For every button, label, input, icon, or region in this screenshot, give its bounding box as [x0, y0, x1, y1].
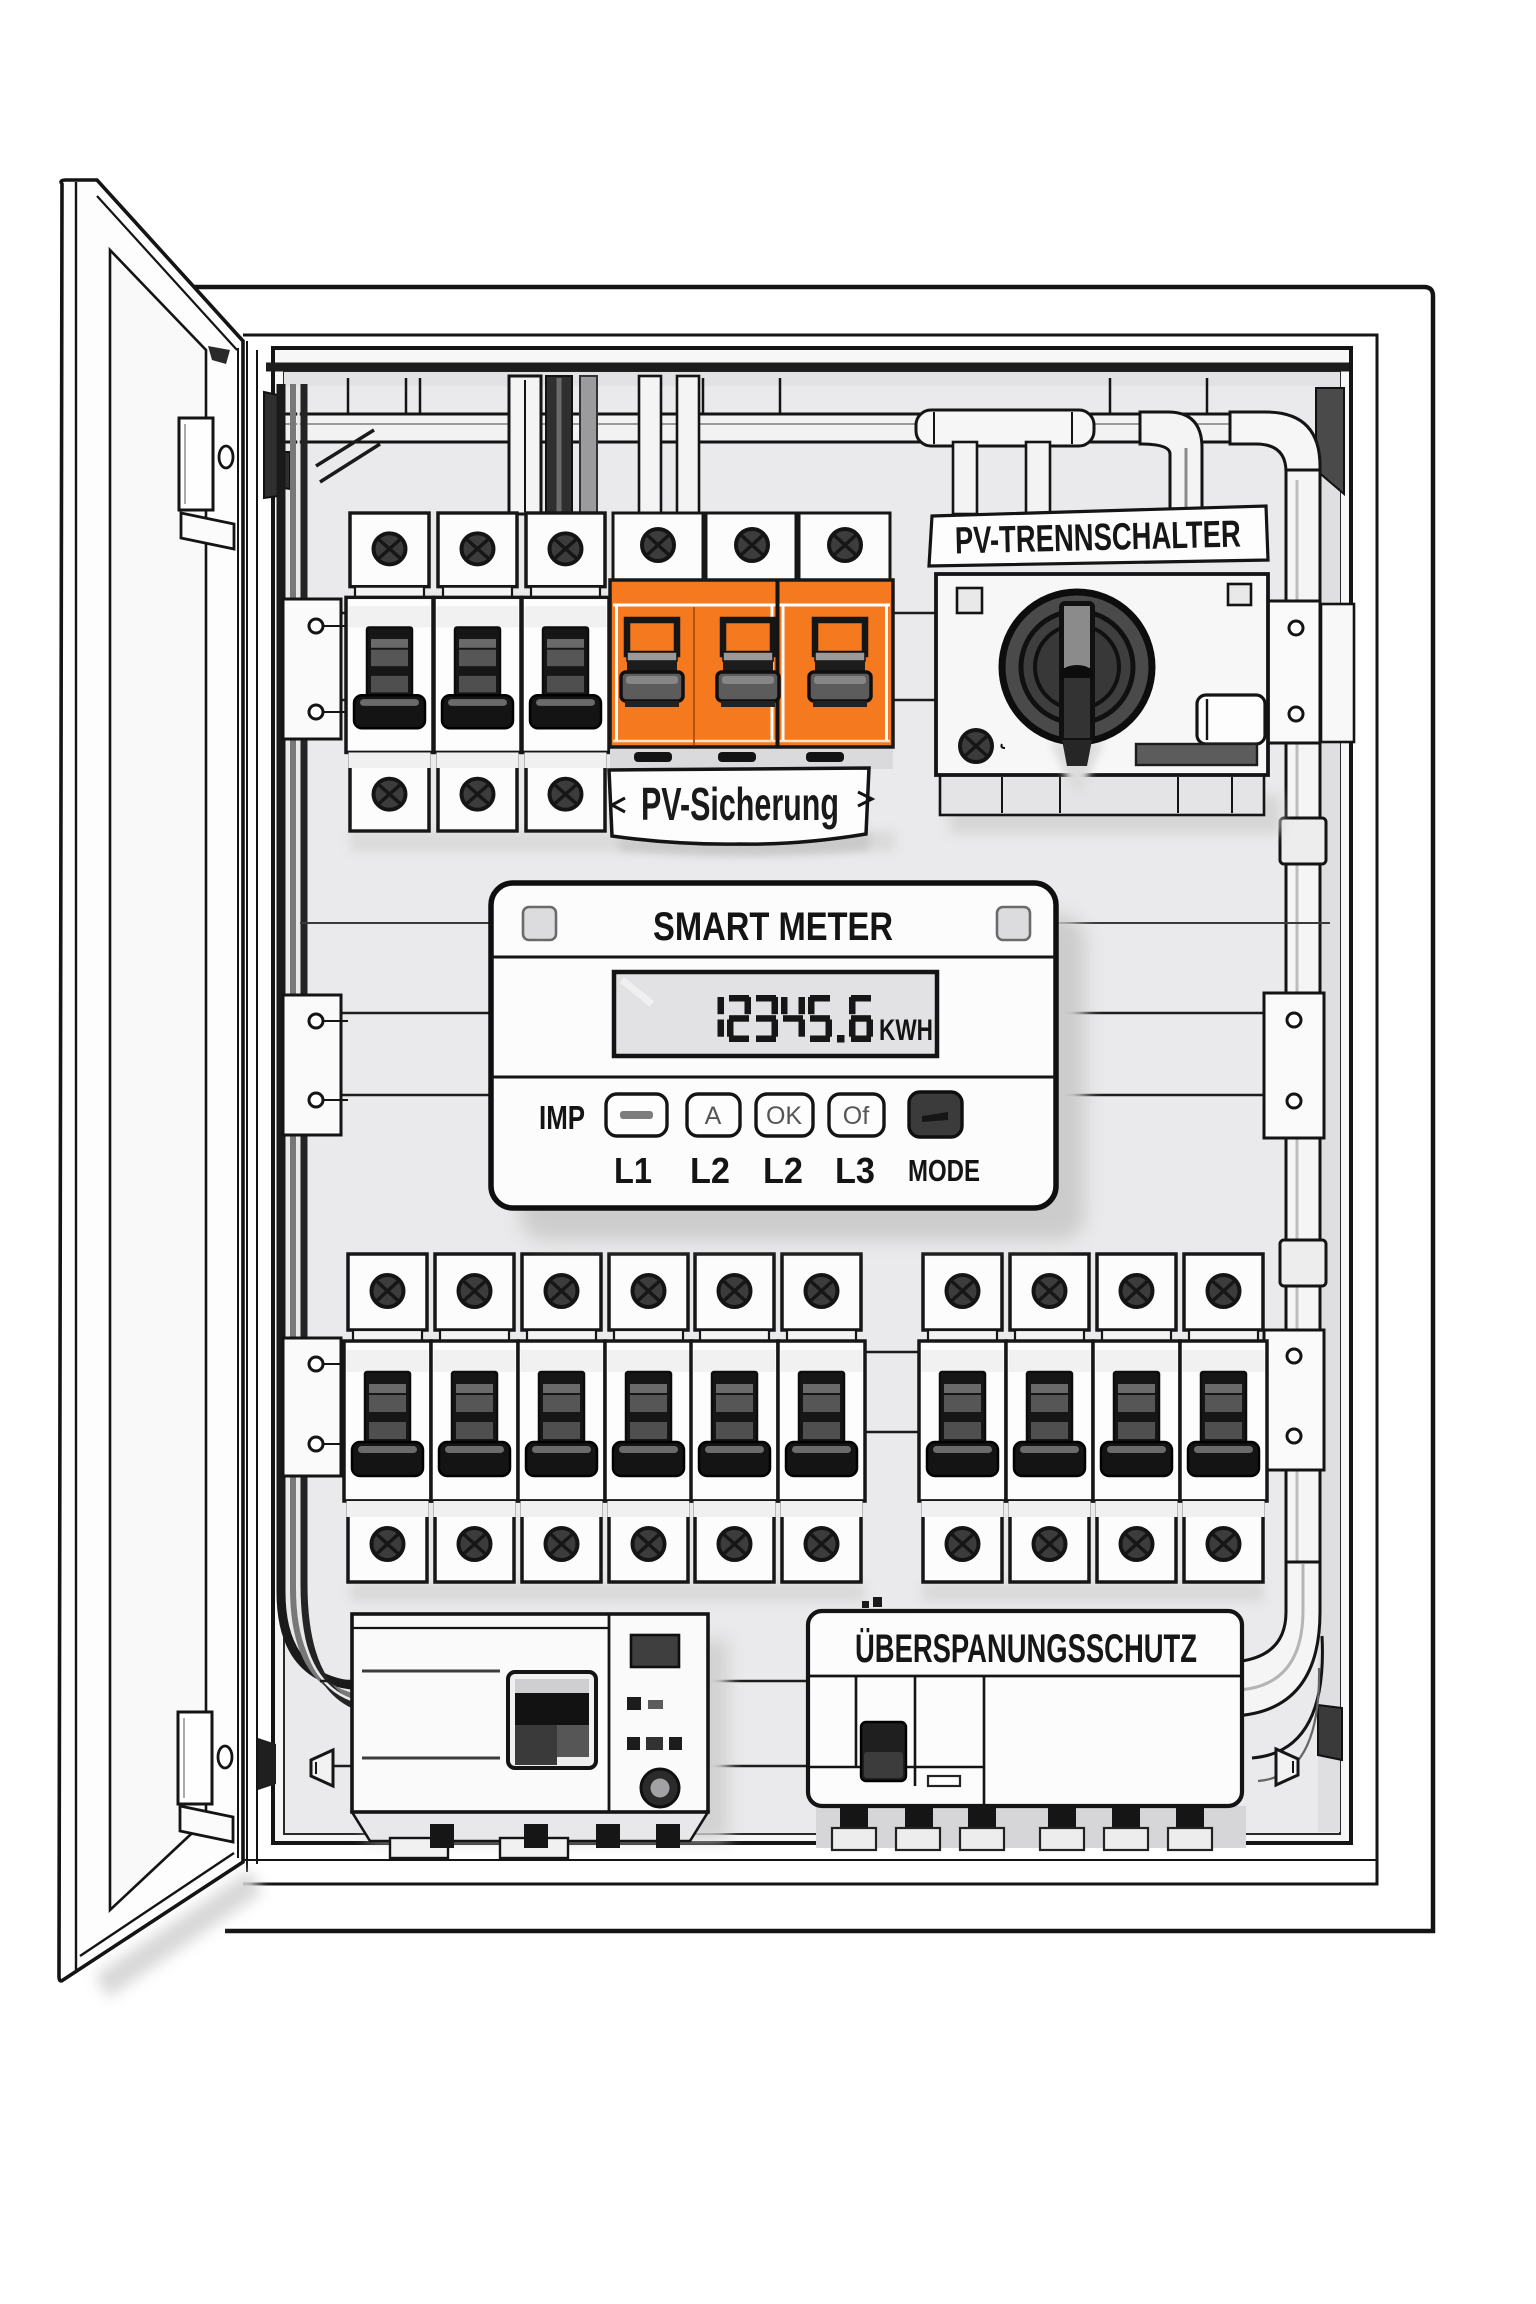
svg-text:L2: L2: [690, 1150, 730, 1191]
svg-text:PV-Sicherung: PV-Sicherung: [641, 778, 839, 830]
svg-text:OK: OK: [766, 1102, 802, 1130]
svg-text:L3: L3: [835, 1150, 875, 1191]
svg-text:SMART METER: SMART METER: [653, 905, 893, 949]
svg-text:Of: Of: [843, 1102, 869, 1130]
svg-text:L1: L1: [614, 1150, 652, 1191]
svg-text:IMP: IMP: [539, 1099, 585, 1136]
svg-text:L2: L2: [763, 1150, 803, 1191]
svg-text:MODE: MODE: [908, 1153, 980, 1188]
svg-text:ÜBERSPANUNGSSCHUTZ: ÜBERSPANUNGSSCHUTZ: [855, 1626, 1197, 1671]
svg-text:A: A: [705, 1102, 722, 1130]
svg-text:PV-TRENNSCHALTER: PV-TRENNSCHALTER: [954, 514, 1241, 563]
svg-text:KWH: KWH: [879, 1014, 933, 1047]
